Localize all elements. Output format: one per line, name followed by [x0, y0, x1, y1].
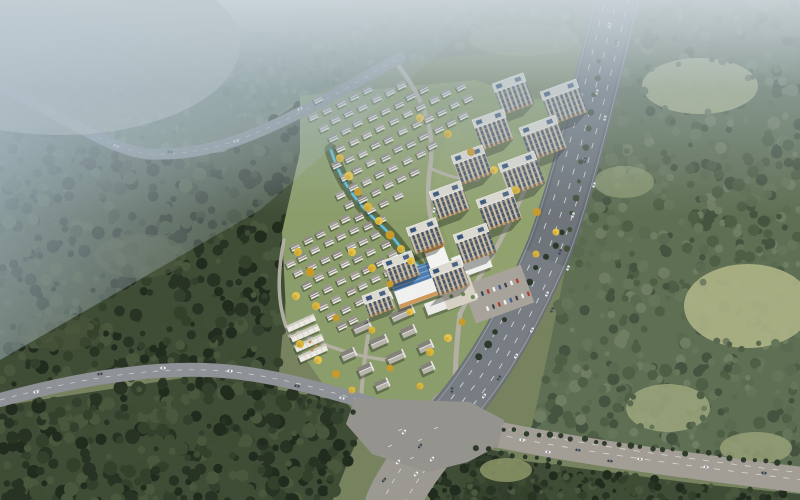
car [227, 370, 232, 373]
car [761, 472, 766, 475]
aerial-site-rendering [0, 0, 800, 500]
car [703, 466, 708, 469]
car [160, 367, 165, 369]
rendering-canvas [0, 0, 800, 500]
car [451, 387, 454, 392]
